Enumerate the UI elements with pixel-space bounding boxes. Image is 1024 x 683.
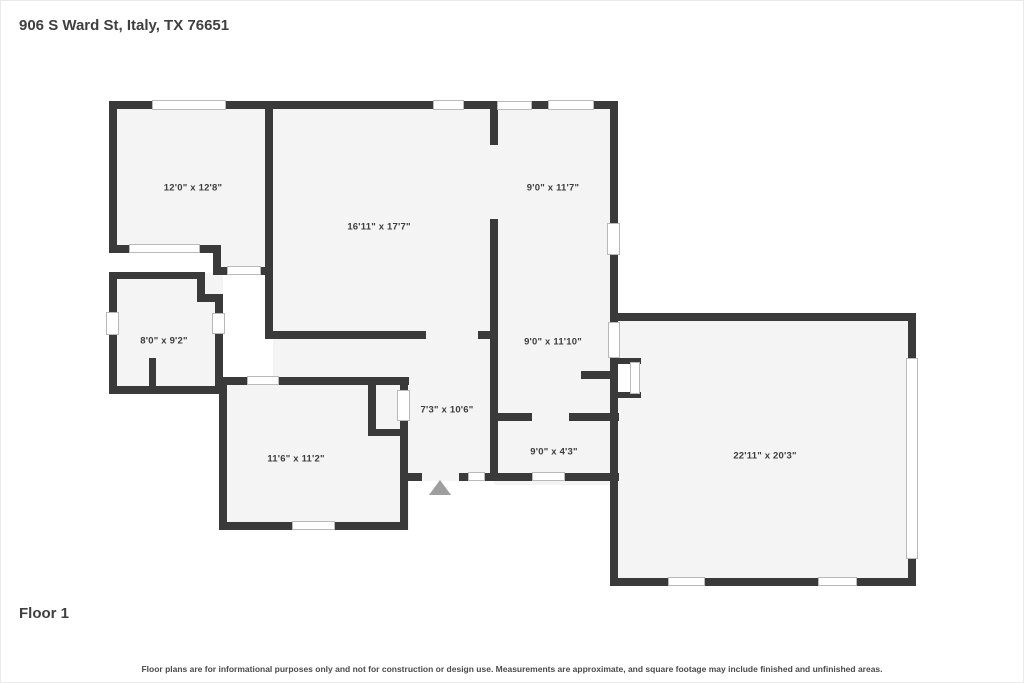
window [468, 472, 485, 481]
room-label-hallway: 7'3" x 10'6" [421, 405, 474, 416]
room-label-mid-right: 9'0" x 11'10" [524, 337, 582, 348]
floor-plan: 12'0" x 12'8" 16'11" x 17'7" 9'0" x 11'7… [1, 1, 1024, 683]
room-floor [404, 376, 498, 481]
wall [498, 413, 532, 421]
wall [408, 473, 422, 481]
window [497, 101, 532, 110]
room-floor [113, 272, 223, 393]
room-label-garage: 22'11" x 20'3" [733, 451, 796, 462]
window [152, 100, 226, 110]
window [106, 312, 119, 335]
wall [109, 386, 223, 394]
room-label-small: 9'0" x 4'3" [530, 447, 577, 458]
window [433, 100, 464, 110]
wall [613, 578, 916, 586]
room-label-bottom-left: 11'6" x 11'2" [267, 454, 324, 465]
wall [109, 272, 205, 279]
window [212, 313, 225, 334]
room-floor [494, 105, 618, 485]
wall [490, 219, 498, 481]
window [129, 244, 200, 253]
window [532, 472, 565, 481]
window [608, 322, 620, 358]
window [548, 100, 594, 110]
room-label-top-left: 12'0" x 12'8" [164, 183, 222, 194]
disclaimer-text: Floor plans are for informational purpos… [1, 664, 1023, 674]
exterior-recess [223, 275, 267, 377]
window [227, 266, 261, 275]
wall [610, 101, 618, 317]
window [818, 577, 857, 586]
wall [368, 429, 408, 436]
room-floor [615, 315, 912, 582]
wall [269, 331, 426, 339]
room-label-center: 16'11" x 17'7" [347, 222, 410, 233]
window [292, 521, 335, 530]
wall [265, 101, 273, 339]
window [668, 577, 705, 586]
wall [613, 313, 916, 321]
wall [581, 371, 613, 379]
window [906, 358, 918, 559]
room-label-top-right: 9'0" x 11'7" [527, 183, 579, 194]
room-floor [113, 105, 273, 253]
floor-label: Floor 1 [19, 605, 69, 622]
wall [368, 385, 376, 432]
room-label-mid-left: 8'0" x 9'2" [140, 336, 187, 347]
exterior-recess [109, 252, 215, 273]
wall [109, 105, 117, 251]
window [607, 223, 620, 255]
wall [149, 358, 156, 393]
window [247, 376, 279, 385]
window [397, 390, 410, 421]
exterior-recess [265, 339, 273, 377]
entry-door-marker [429, 480, 451, 495]
wall [219, 377, 227, 530]
floor-plan-page: 906 S Ward St, Italy, TX 76651 [0, 0, 1024, 683]
window [630, 362, 640, 394]
